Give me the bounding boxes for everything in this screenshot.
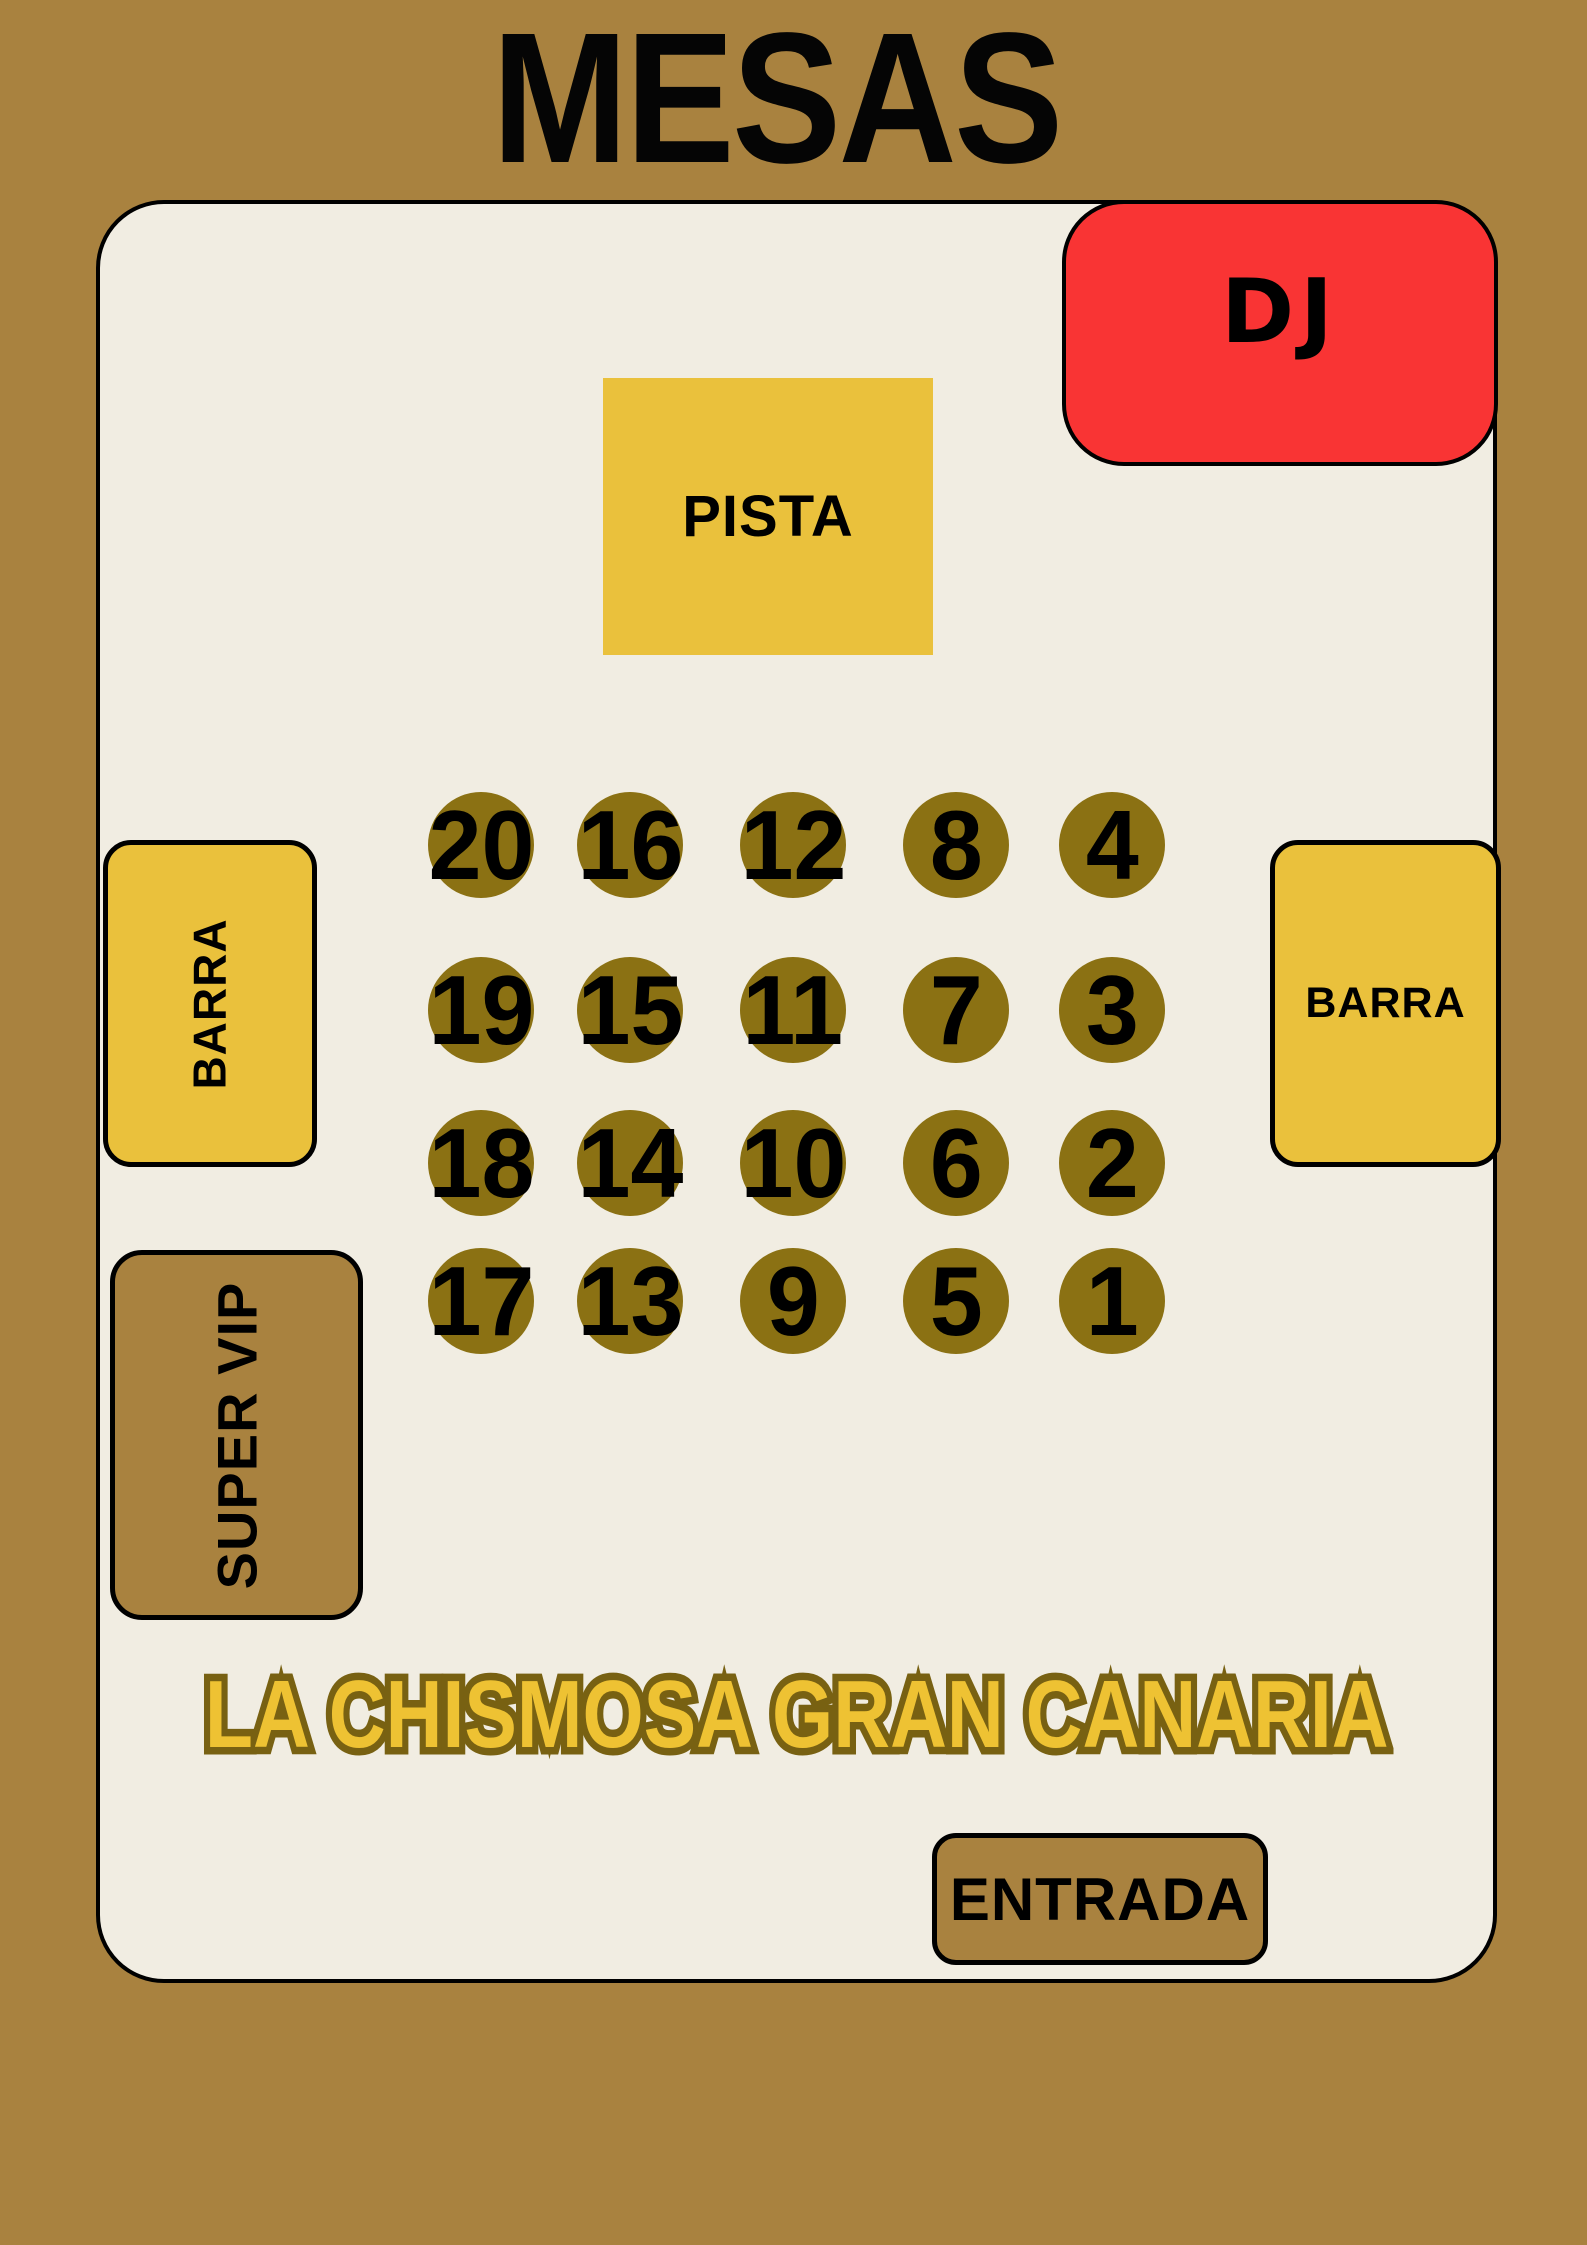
table-seat-1[interactable]: 1: [1059, 1248, 1165, 1354]
table-number: 7: [930, 961, 983, 1059]
table-number: 3: [1086, 961, 1139, 1059]
mesas-floor-plan-page: MESAS DJ PISTA BARRA BARRA SUPER VIP ENT…: [0, 0, 1587, 2245]
table-number: 14: [577, 1114, 683, 1212]
table-number: 16: [577, 796, 683, 894]
table-number: 9: [767, 1252, 820, 1350]
table-number: 1: [1086, 1252, 1139, 1350]
table-number: 10: [740, 1114, 846, 1212]
table-seat-2[interactable]: 2: [1059, 1110, 1165, 1216]
table-seat-6[interactable]: 6: [903, 1110, 1009, 1216]
table-number: 15: [577, 961, 683, 1059]
table-number: 13: [577, 1252, 683, 1350]
table-seat-19[interactable]: 19: [428, 957, 534, 1063]
table-number: 12: [740, 796, 846, 894]
table-number: 20: [428, 796, 534, 894]
table-number: 6: [930, 1114, 983, 1212]
table-seat-4[interactable]: 4: [1059, 792, 1165, 898]
table-number: 11: [743, 961, 844, 1059]
table-seat-18[interactable]: 18: [428, 1110, 534, 1216]
table-number: 4: [1086, 796, 1139, 894]
table-number: 2: [1086, 1114, 1139, 1212]
table-seat-20[interactable]: 20: [428, 792, 534, 898]
table-seat-13[interactable]: 13: [577, 1248, 683, 1354]
table-number: 18: [428, 1114, 534, 1212]
table-seat-9[interactable]: 9: [740, 1248, 846, 1354]
table-seat-10[interactable]: 10: [740, 1110, 846, 1216]
table-seat-11[interactable]: 11: [740, 957, 846, 1063]
table-seat-12[interactable]: 12: [740, 792, 846, 898]
table-seat-3[interactable]: 3: [1059, 957, 1165, 1063]
table-seat-15[interactable]: 15: [577, 957, 683, 1063]
table-seat-14[interactable]: 14: [577, 1110, 683, 1216]
table-number: 17: [428, 1252, 534, 1350]
table-seat-8[interactable]: 8: [903, 792, 1009, 898]
table-seat-5[interactable]: 5: [903, 1248, 1009, 1354]
table-seat-17[interactable]: 17: [428, 1248, 534, 1354]
table-number: 8: [930, 796, 983, 894]
table-seat-16[interactable]: 16: [577, 792, 683, 898]
table-number: 19: [428, 961, 534, 1059]
table-seat-7[interactable]: 7: [903, 957, 1009, 1063]
table-number: 5: [930, 1252, 983, 1350]
tables-grid: 2016128419151173181410621713951: [0, 0, 1587, 2245]
